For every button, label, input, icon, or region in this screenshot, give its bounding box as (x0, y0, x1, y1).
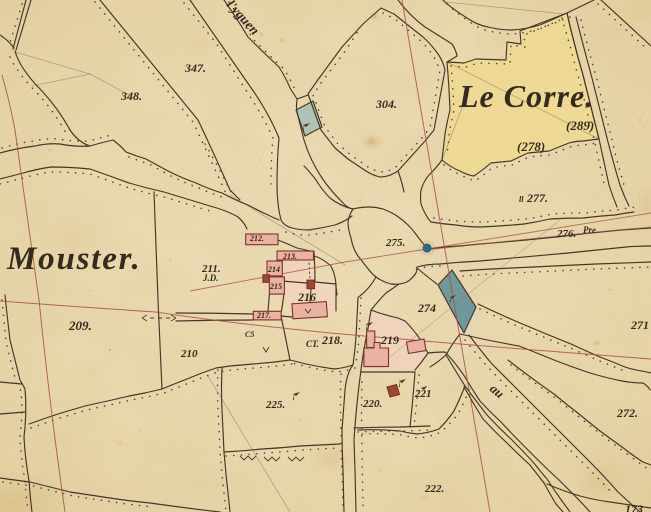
svg-text:Pre: Pre (583, 225, 596, 235)
svg-text:276.: 276. (556, 228, 576, 240)
svg-text:Le Corre.: Le Corre. (458, 78, 594, 114)
svg-text:304.: 304. (375, 97, 397, 111)
svg-text:272.: 272. (616, 406, 638, 420)
svg-text:277.: 277. (526, 191, 548, 205)
svg-text:209.: 209. (68, 318, 92, 333)
svg-text:218.: 218. (321, 333, 343, 347)
svg-text:215: 215 (269, 282, 282, 291)
svg-text:ll: ll (519, 195, 524, 204)
svg-text:221: 221 (414, 388, 432, 400)
svg-text:(278): (278) (517, 139, 545, 154)
svg-text:Mouster.: Mouster. (6, 241, 142, 277)
svg-text:J.D.: J.D. (202, 273, 219, 283)
svg-text:219: 219 (380, 333, 399, 347)
svg-text:216: 216 (297, 290, 316, 304)
svg-text:347.: 347. (184, 61, 206, 75)
svg-text:217.: 217. (256, 311, 271, 320)
svg-text:173: 173 (625, 502, 643, 512)
svg-text:274: 274 (417, 301, 436, 315)
svg-text:271: 271 (630, 318, 649, 332)
svg-text:CT.: CT. (306, 339, 319, 349)
svg-text:225.: 225. (265, 399, 285, 411)
svg-text:275.: 275. (385, 237, 405, 249)
svg-text:214: 214 (267, 265, 280, 274)
svg-text:210: 210 (180, 348, 198, 360)
svg-text:212.: 212. (249, 234, 264, 243)
svg-text:348.: 348. (120, 89, 142, 103)
svg-text:(289): (289) (566, 118, 594, 133)
svg-text:222.: 222. (424, 483, 444, 495)
svg-text:220.: 220. (362, 398, 382, 410)
svg-text:C5: C5 (245, 330, 254, 339)
svg-text:213.: 213. (282, 252, 297, 261)
